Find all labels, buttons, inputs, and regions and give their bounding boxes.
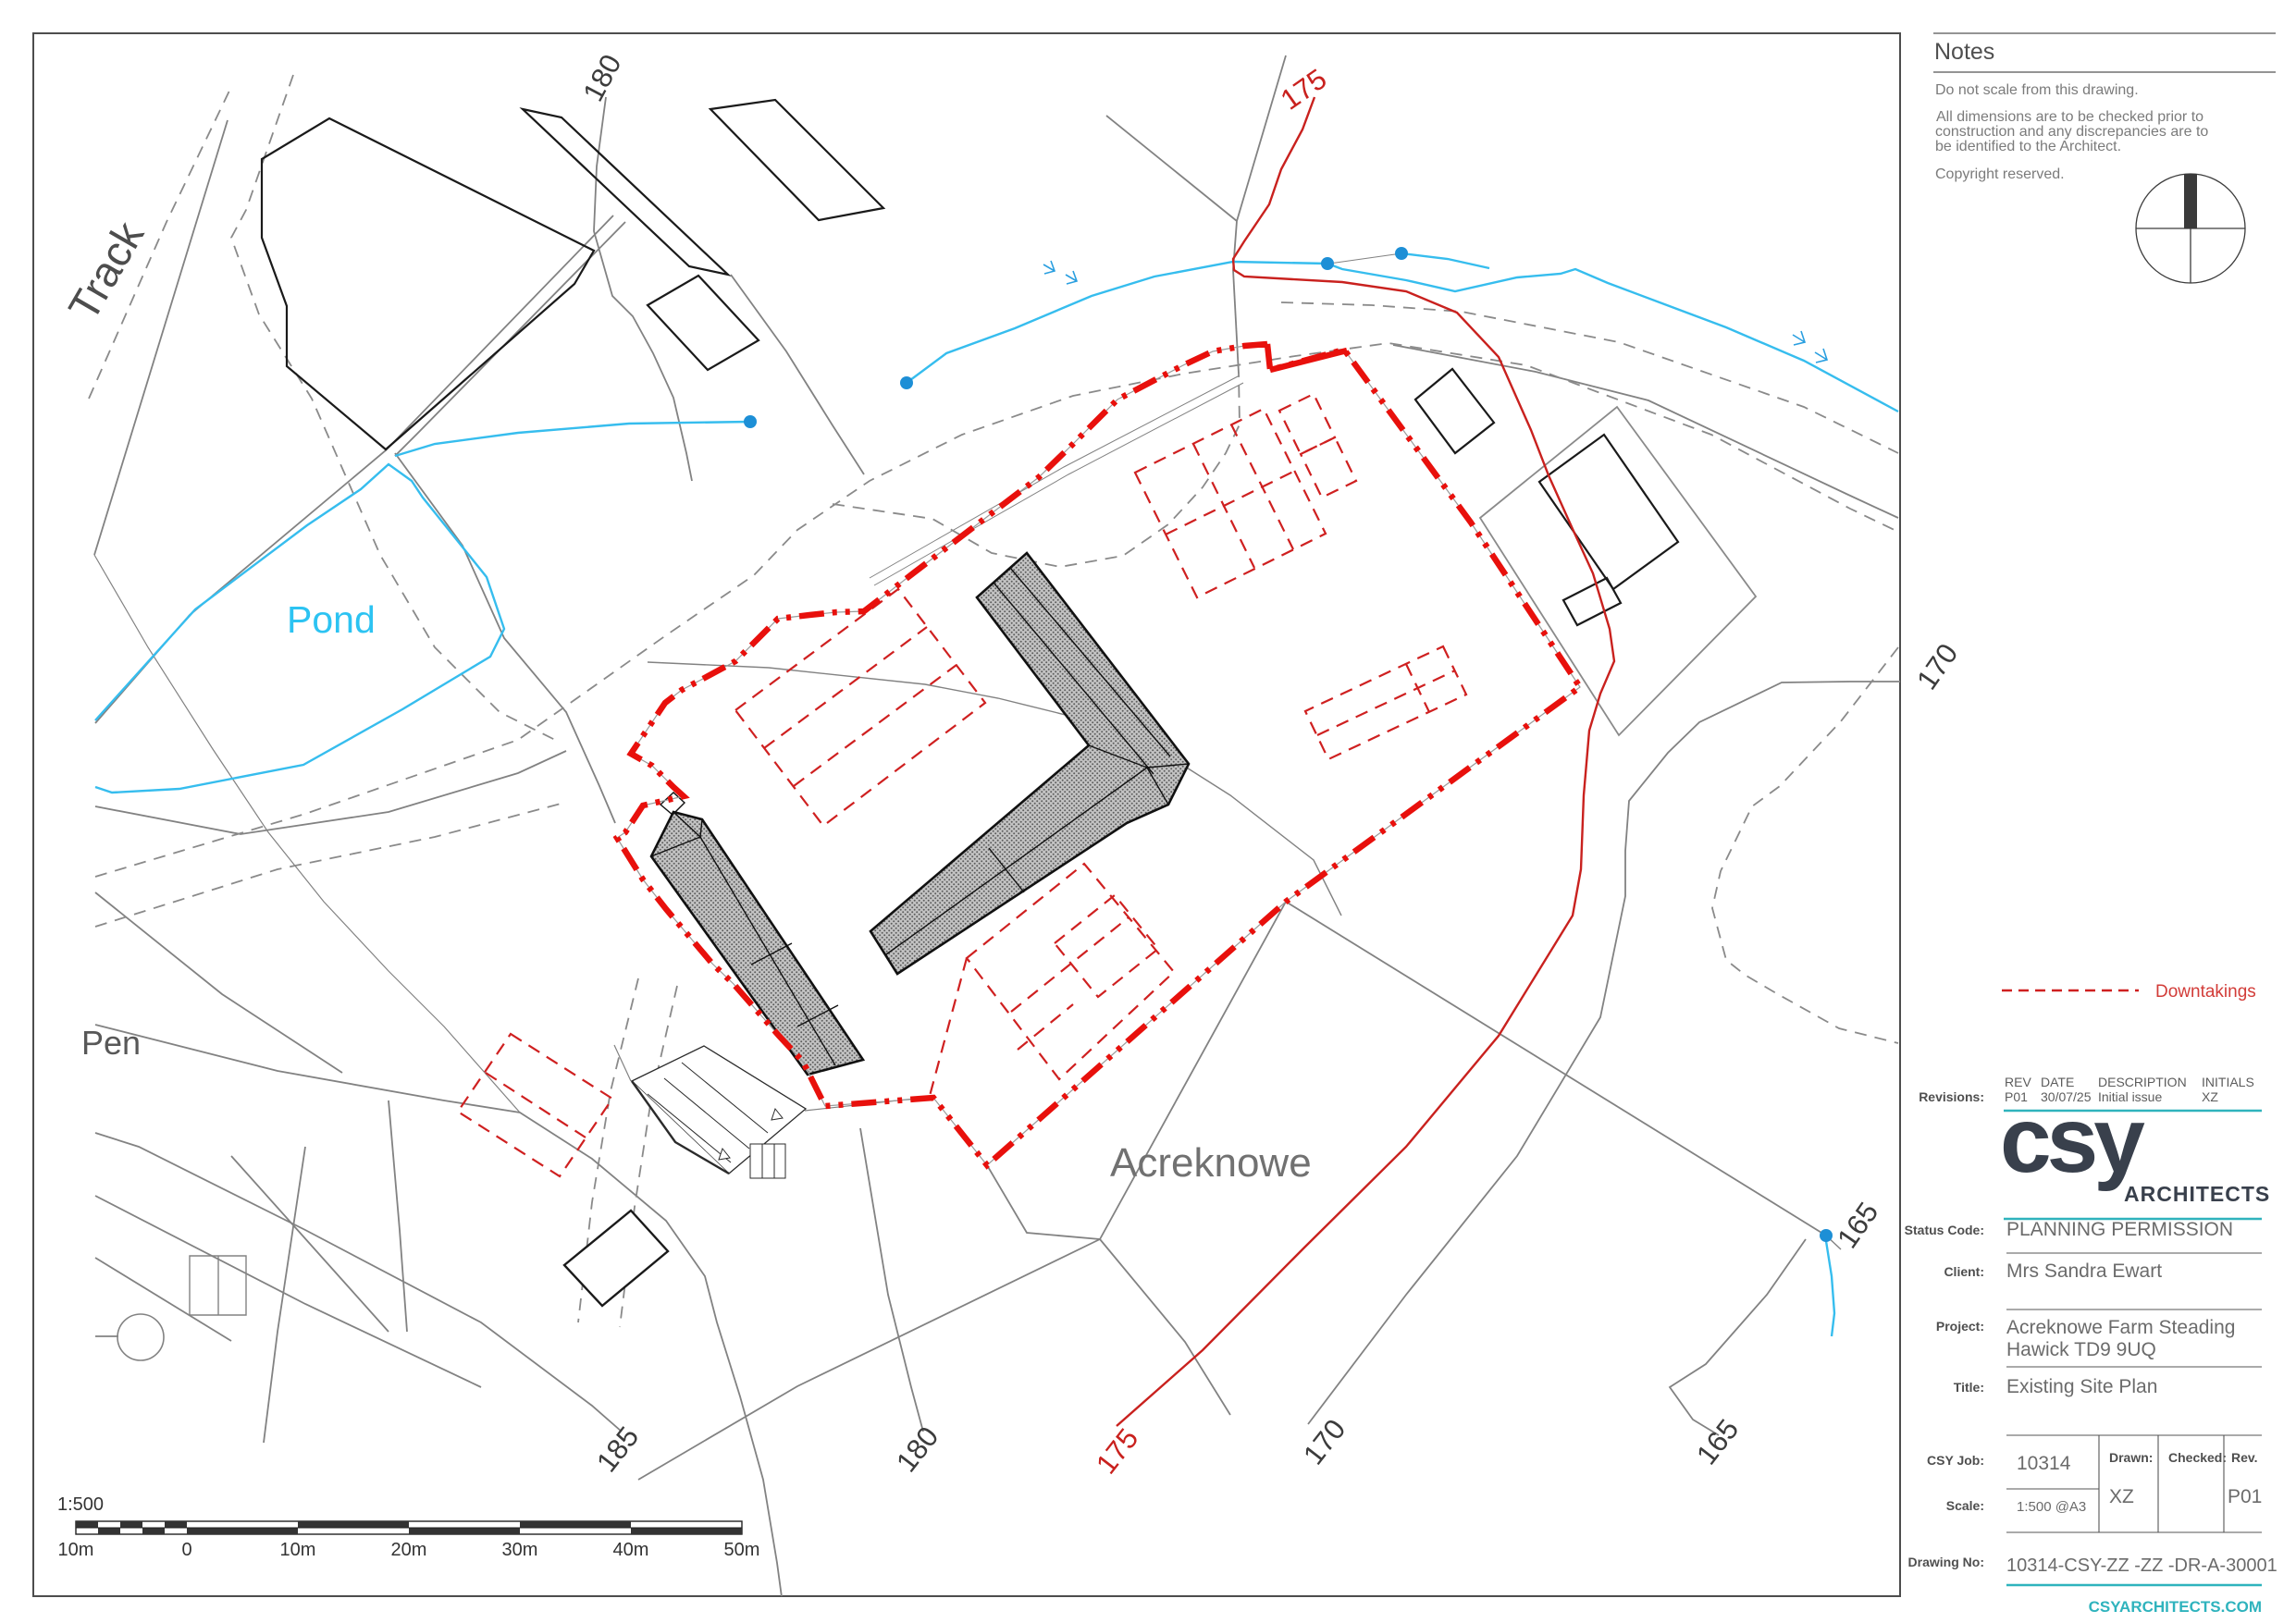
svg-text:Acreknowe Farm Steading: Acreknowe Farm Steading [2006, 1317, 2235, 1338]
svg-text:Notes: Notes [1934, 39, 1994, 65]
svg-text:165: 165 [1831, 1197, 1884, 1254]
svg-text:Rev.: Rev. [2231, 1450, 2258, 1465]
svg-text:Client:: Client: [1944, 1264, 1984, 1279]
svg-text:1:500 @A3: 1:500 @A3 [2017, 1499, 2086, 1515]
svg-text:180: 180 [890, 1420, 944, 1478]
svg-text:10314: 10314 [2017, 1453, 2071, 1474]
svg-text:be identified to the Architect: be identified to the Architect. [1935, 139, 2121, 154]
svg-text:Title:: Title: [1954, 1380, 1984, 1395]
svg-text:Scale:: Scale: [1946, 1498, 1984, 1513]
svg-text:Pond: Pond [287, 598, 376, 641]
svg-text:165: 165 [1690, 1413, 1745, 1470]
svg-text:Status Code:: Status Code: [1905, 1223, 1984, 1237]
svg-text:Checked:: Checked: [2168, 1450, 2227, 1465]
svg-text:170: 170 [1910, 638, 1964, 695]
svg-text:Revisions:: Revisions: [1919, 1089, 1984, 1104]
svg-text:30m: 30m [502, 1540, 538, 1560]
svg-text:Pen: Pen [81, 1024, 141, 1062]
svg-text:ARCHITECTS: ARCHITECTS [2124, 1182, 2270, 1206]
svg-text:CSY Job:: CSY Job: [1927, 1453, 1984, 1468]
svg-text:Mrs Sandra Ewart: Mrs Sandra Ewart [2006, 1260, 2162, 1282]
svg-text:180: 180 [576, 49, 627, 106]
svg-text:Acreknowe: Acreknowe [1110, 1140, 1312, 1186]
svg-text:Existing Site Plan: Existing Site Plan [2006, 1376, 2157, 1397]
svg-text:P01: P01 [2228, 1486, 2262, 1507]
svg-text:175: 175 [1275, 62, 1332, 116]
svg-text:XZ: XZ [2202, 1089, 2218, 1104]
svg-text:Drawn:: Drawn: [2109, 1450, 2153, 1465]
svg-text:construction and any discrepan: construction and any discrepancies are t… [1935, 124, 2208, 140]
svg-text:Project:: Project: [1936, 1319, 1984, 1334]
svg-text:INITIALS: INITIALS [2202, 1075, 2254, 1089]
svg-text:40m: 40m [613, 1540, 649, 1560]
svg-text:10m: 10m [58, 1540, 94, 1560]
svg-text:10m: 10m [280, 1540, 316, 1560]
svg-text:All dimensions are to be check: All dimensions are to be checked prior t… [1936, 109, 2203, 125]
svg-text:175: 175 [1090, 1422, 1144, 1480]
svg-text:1:500: 1:500 [57, 1494, 104, 1515]
svg-text:Downtakings: Downtakings [2155, 982, 2256, 1002]
svg-text:PLANNING PERMISSION: PLANNING PERMISSION [2006, 1219, 2233, 1240]
svg-text:Track: Track [59, 213, 154, 328]
svg-text:Do not scale from this drawing: Do not scale from this drawing. [1935, 82, 2139, 98]
svg-text:DESCRIPTION: DESCRIPTION [2098, 1075, 2187, 1089]
svg-text:Copyright reserved.: Copyright reserved. [1935, 166, 2065, 182]
svg-text:170: 170 [1297, 1413, 1352, 1470]
svg-text:XZ: XZ [2109, 1486, 2134, 1507]
svg-text:10314-CSY-ZZ -ZZ -DR-A-30001: 10314-CSY-ZZ -ZZ -DR-A-30001 [2006, 1555, 2277, 1576]
svg-text:DATE: DATE [2041, 1075, 2074, 1089]
svg-text:50m: 50m [724, 1540, 760, 1560]
svg-text:Drawing No:: Drawing No: [1908, 1555, 1984, 1569]
svg-text:REV: REV [2005, 1075, 2031, 1089]
svg-text:csy: csy [2000, 1088, 2145, 1192]
svg-text:20m: 20m [391, 1540, 427, 1560]
svg-text:CSYARCHITECTS.COM: CSYARCHITECTS.COM [2089, 1598, 2262, 1616]
svg-text:Hawick TD9 9UQ: Hawick TD9 9UQ [2006, 1339, 2156, 1360]
svg-text:185: 185 [590, 1420, 645, 1478]
svg-text:0: 0 [181, 1540, 191, 1560]
